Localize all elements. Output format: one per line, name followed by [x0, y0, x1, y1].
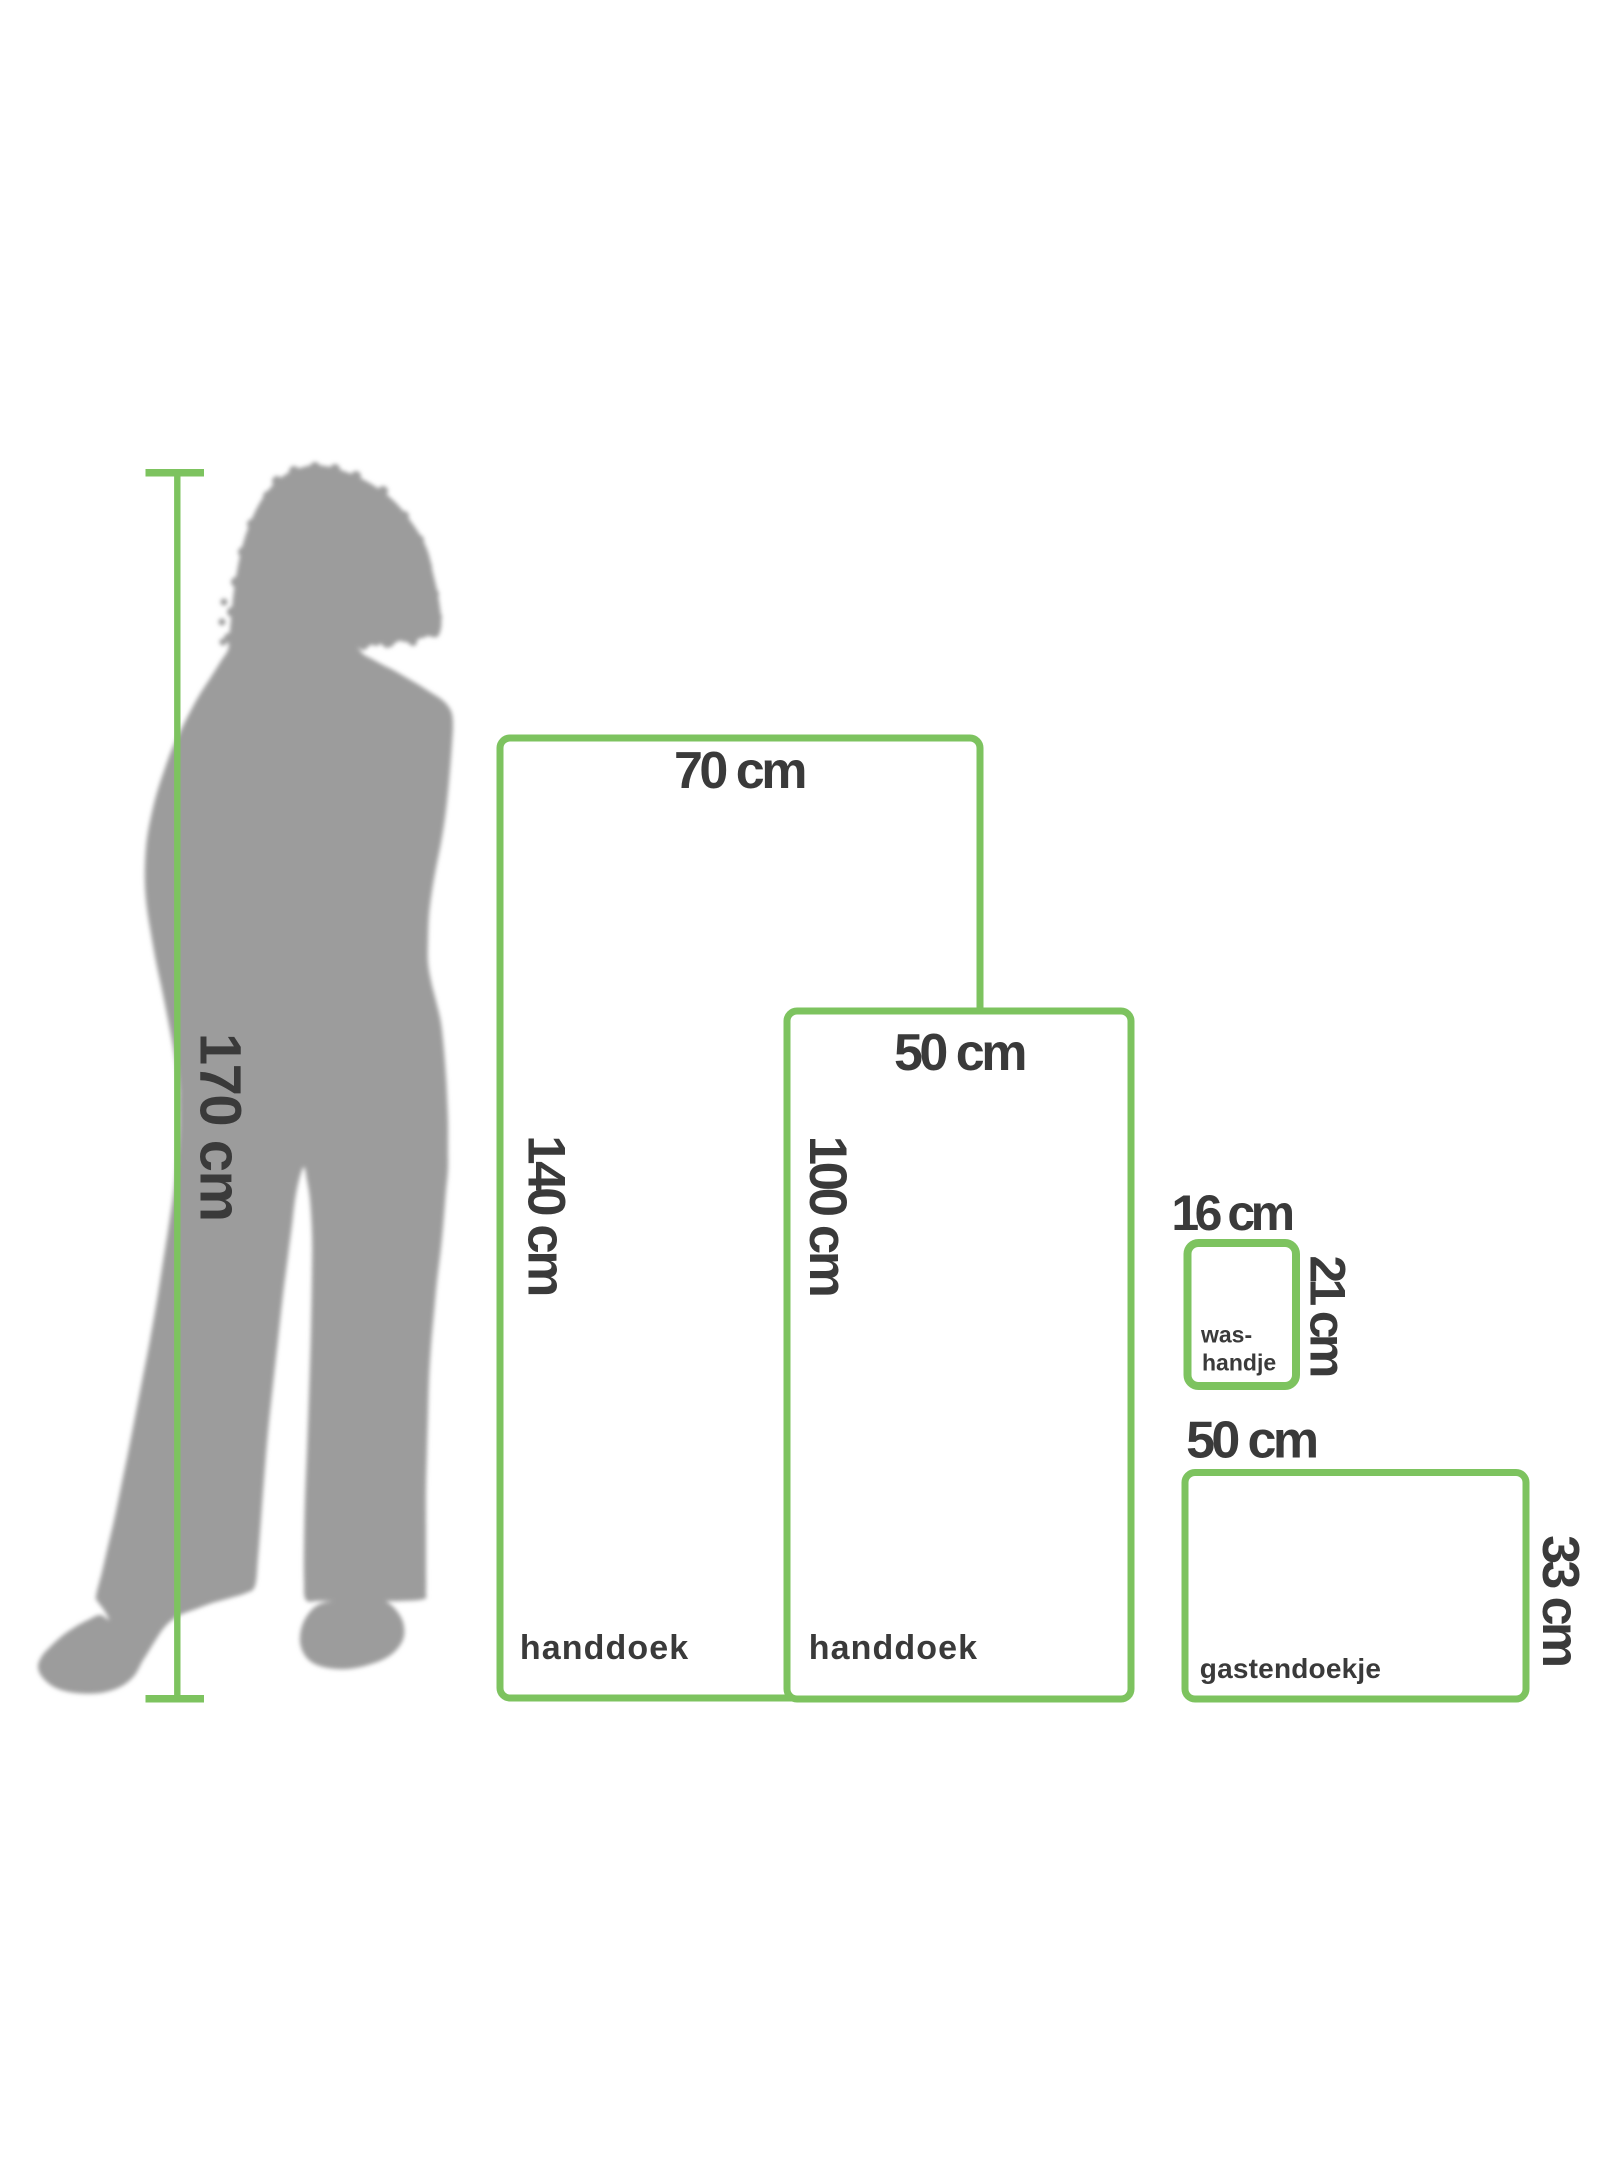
svg-text:21 cm: 21 cm — [1299, 1255, 1355, 1376]
svg-text:170 cm: 170 cm — [187, 1033, 252, 1221]
svg-text:handdoek: handdoek — [520, 1629, 689, 1667]
svg-text:140 cm: 140 cm — [517, 1135, 576, 1294]
svg-text:50 cm: 50 cm — [1186, 1412, 1317, 1470]
svg-text:16 cm: 16 cm — [1171, 1185, 1292, 1241]
svg-text:was-: was- — [1200, 1322, 1252, 1348]
svg-text:70 cm: 70 cm — [674, 742, 805, 800]
svg-text:100 cm: 100 cm — [798, 1136, 857, 1295]
svg-text:33 cm: 33 cm — [1531, 1535, 1589, 1666]
svg-text:handje: handje — [1202, 1350, 1276, 1376]
svg-text:50 cm: 50 cm — [894, 1024, 1025, 1082]
svg-text:handdoek: handdoek — [809, 1629, 978, 1667]
svg-text:gastendoekje: gastendoekje — [1200, 1653, 1381, 1684]
